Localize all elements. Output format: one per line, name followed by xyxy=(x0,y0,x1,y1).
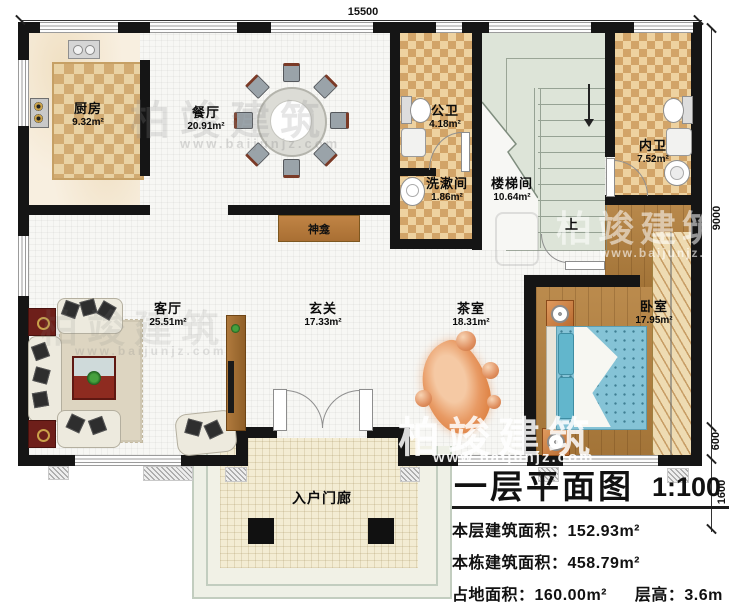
watermark-url: www.baijunjz.com xyxy=(180,136,340,151)
stair-arrow-line xyxy=(588,84,590,120)
footprint-area: 占地面积：160.00m² xyxy=(452,587,607,604)
room-label-inner-bath: 内卫7.52m² xyxy=(637,139,669,165)
dimension-top-value: 15500 xyxy=(336,6,390,18)
room-label-tea: 茶室18.31m² xyxy=(452,302,489,328)
room-label-living: 客厅25.51m² xyxy=(149,302,186,328)
sofa-bottom xyxy=(57,410,121,448)
stairs-up-label: 上 xyxy=(565,218,579,233)
tea-art-sphere xyxy=(456,331,476,351)
entry-door-leaf xyxy=(273,389,287,431)
kitchen-stove xyxy=(30,98,49,128)
washroom-sink xyxy=(400,177,425,206)
room-label-foyer: 玄关17.33m² xyxy=(304,302,341,328)
toilet-bowl xyxy=(410,98,431,123)
pier-hatch xyxy=(143,466,193,481)
building-area-line: 本栋建筑面积：458.79m² xyxy=(452,549,748,573)
wall-innerbath-left xyxy=(605,33,615,157)
tv-cabinet xyxy=(226,315,246,431)
watermark-url: www.baijunjz.com xyxy=(75,344,227,358)
window xyxy=(436,22,462,33)
floor-plan-page: 神龛 柏竣建筑 xyxy=(0,0,750,610)
room-label-public-bath: 公卫4.18m² xyxy=(429,104,461,130)
end-table xyxy=(28,420,56,448)
dining-chair xyxy=(330,112,349,129)
plan-scale: 1:100 xyxy=(652,473,721,503)
tea-art-sphere xyxy=(482,362,499,379)
plant xyxy=(87,371,101,385)
storey-height: 层高：3.6m xyxy=(635,587,723,604)
window xyxy=(75,455,181,466)
pier-hatch xyxy=(48,466,69,480)
wall-stair-left xyxy=(472,33,482,250)
watermark-url: www.baijunjz.com xyxy=(433,449,594,466)
wall-kitchen-bottom xyxy=(18,205,150,215)
plant xyxy=(231,324,240,333)
shrine-label: 神龛 xyxy=(279,221,359,237)
room-label-washroom: 洗漱间1.86m² xyxy=(426,177,468,203)
footprint-line: 占地面积：160.00m² 层高：3.6m xyxy=(452,581,748,605)
watermark-brand: 柏竣建筑 xyxy=(556,200,724,252)
porch-column xyxy=(248,518,274,544)
window xyxy=(40,22,118,33)
wardrobe-rail xyxy=(670,232,672,455)
pier-hatch xyxy=(400,467,420,482)
window xyxy=(271,22,373,33)
wall-bath-left xyxy=(390,33,400,247)
room-label-stairwell: 楼梯间10.64m² xyxy=(491,177,533,203)
kitchen-sink xyxy=(68,40,100,59)
watermark-url: www.baijunjz.com xyxy=(600,246,736,260)
porch-column xyxy=(368,518,394,544)
watermark-logo xyxy=(495,212,539,266)
dining-chair xyxy=(283,159,300,178)
wardrobe xyxy=(652,232,692,455)
dimension-line-top xyxy=(20,20,702,21)
floor-area-line: 本层建筑面积：152.93m² xyxy=(452,517,748,541)
plan-title: 一层平面图 xyxy=(454,470,634,503)
bed-pillow xyxy=(558,333,574,375)
bedroom-door-leaf xyxy=(565,261,605,270)
window xyxy=(18,236,29,296)
coffee-table xyxy=(72,356,116,400)
title-row: 一层平面图 1:100 xyxy=(452,470,729,509)
window xyxy=(489,22,591,33)
tv-screen xyxy=(228,361,234,413)
title-block: 一层平面图 1:100 本层建筑面积：152.93m² 本栋建筑面积：458.7… xyxy=(452,470,748,605)
dimension-right-step: 600 xyxy=(710,423,722,459)
room-label-porch: 入户门廊 xyxy=(292,490,352,506)
nightstand xyxy=(546,300,574,328)
innerbath-door-leaf xyxy=(606,158,615,197)
room-label-kitchen: 厨房9.32m² xyxy=(72,102,104,128)
stair-arrow-head xyxy=(584,119,594,127)
shrine-table: 神龛 xyxy=(278,215,360,242)
washer xyxy=(401,128,426,157)
sofa-pillow xyxy=(32,391,49,408)
wall-dining-bottom xyxy=(228,205,400,215)
window xyxy=(634,22,693,33)
pier-hatch xyxy=(225,467,247,482)
toilet-bowl xyxy=(663,98,684,123)
room-label-bedroom: 卧室17.95m² xyxy=(635,300,672,326)
wall-bedroom-top xyxy=(536,275,640,287)
wall-washroom-bottom xyxy=(390,239,482,249)
dining-chair xyxy=(283,63,300,82)
window xyxy=(18,60,29,126)
bath-door-leaf xyxy=(461,132,470,172)
room-label-dining: 餐厅20.91m² xyxy=(187,106,224,132)
washer xyxy=(666,128,692,156)
entry-door-leaf xyxy=(359,389,373,431)
window xyxy=(150,22,237,33)
dimension-right-main: 9000 xyxy=(711,196,723,240)
